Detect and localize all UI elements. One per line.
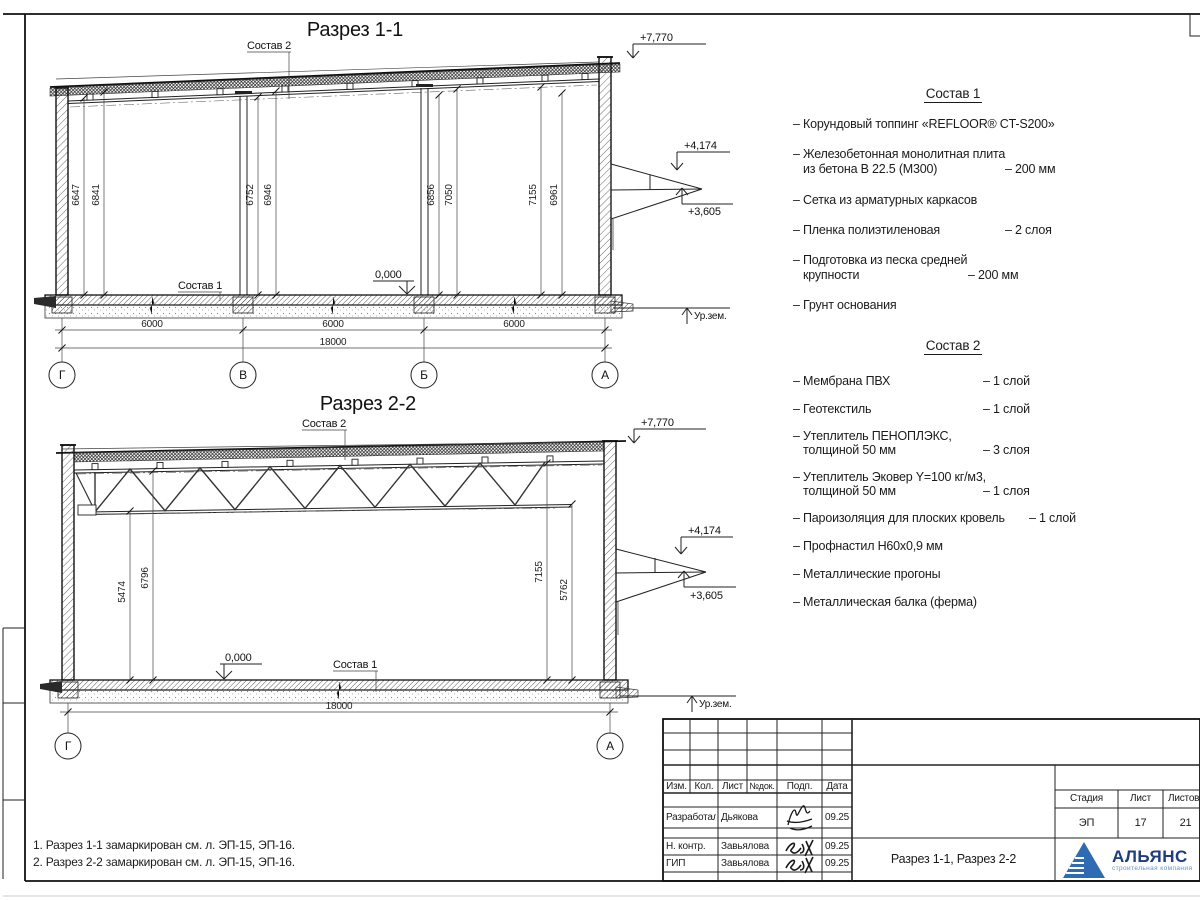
section-2-2: Разрез 2-2	[40, 393, 736, 759]
s2-dim-18000: 18000	[326, 701, 353, 712]
tb-header-doc: №док.	[747, 780, 777, 793]
corner-box	[1190, 14, 1200, 36]
list-item: – Геотекстиль– 1 слой	[793, 402, 871, 416]
s2-horizontal-dims: 18000 Г А	[55, 701, 623, 759]
s2-elev-0000: 0,000	[225, 652, 252, 664]
s1-dim-6000-1: 6000	[141, 319, 163, 330]
list-item: – Подготовка из песка средней	[793, 253, 967, 267]
tb-date-1: 09.25	[822, 808, 852, 828]
signature-zavyalova-2	[786, 857, 813, 873]
s1-axis-bubbles	[49, 362, 618, 388]
sostav-1-title: Состав 1	[793, 86, 1113, 101]
s2-elevation-marks: +7,770 +4,174 +3,605 0,000 Ур.зем. Соста…	[216, 417, 736, 712]
tb-role-razrabotal: Разработал	[666, 808, 716, 828]
s1-axis-v: В	[239, 368, 247, 382]
note-1: 1. Разрез 1-1 замаркирован см. л. ЭП-15,…	[33, 837, 295, 854]
list-item: – Сетка из арматурных каркасов	[793, 193, 977, 207]
signature-zavyalova-1	[786, 840, 813, 856]
tb-header-list: Лист	[718, 780, 747, 793]
s2-dim-5762: 5762	[559, 579, 570, 601]
s2-ground-label: Ур.зем.	[699, 699, 732, 710]
list-item: – Мембрана ПВХ– 1 слой	[793, 374, 890, 388]
list-item: – Пленка полиэтиленовая– 2 слоя	[793, 223, 940, 237]
list-item: – Профнастил Н60х0,9 мм	[793, 539, 943, 553]
tb-header-kol: Кол.	[690, 780, 718, 793]
s1-dim-6752: 6752	[245, 184, 256, 206]
section-1-title: Разрез 1-1	[307, 19, 403, 41]
list-item: – Пароизоляция для плоских кровель– 1 сл…	[793, 511, 1005, 525]
tb-name-zavyalova-1: Завьялова	[721, 838, 776, 855]
s1-vertical-dims: 6647 6841 6752 6946 6856 7050 7155 6961	[71, 84, 566, 299]
list-item: – Металлические прогоны	[793, 567, 940, 581]
logo-name: АЛЬЯНС	[1112, 848, 1192, 865]
list-item: – Утеплитель ПЕНОПЛЭКС,	[793, 429, 952, 443]
tb-header-data: Дата	[822, 780, 852, 793]
list-item: – Железобетонная монолитная плита	[793, 147, 1005, 161]
s1-dim-6856: 6856	[426, 184, 437, 206]
list-item: из бетона В 22.5 (М300)– 200 мм	[793, 162, 937, 176]
s1-sostav1-label: Состав 1	[178, 280, 222, 292]
s1-roof	[50, 62, 620, 107]
tb-stage-value: ЭП	[1055, 808, 1118, 838]
s1-dim-6961: 6961	[549, 184, 560, 206]
tb-role-gip: ГИП	[666, 855, 716, 872]
s2-axis-bubbles	[55, 733, 623, 759]
tb-stage-label: Стадия	[1055, 790, 1118, 808]
s2-truss-support	[78, 505, 96, 515]
s2-dim-6796: 6796	[140, 567, 151, 589]
list-item: – Утеплитель Эковер Y=100 кг/м3,	[793, 470, 986, 484]
list-item: – Корундовый топпинг «REFLOOR® CT-S200»	[793, 117, 1054, 131]
s1-dim-6946: 6946	[263, 184, 274, 206]
s1-dim-7155: 7155	[528, 184, 539, 206]
drawing-sheet: Разрез 1-1	[0, 0, 1200, 900]
tb-date-2: 09.25	[822, 838, 852, 855]
tb-name-zavyalova-2: Завьялова	[721, 855, 776, 872]
s2-dim-5474: 5474	[117, 581, 128, 603]
tb-sheet-label: Лист	[1118, 790, 1163, 808]
s2-elev-4174: +4,174	[688, 525, 721, 537]
s1-horizontal-dims: 6000 6000 6000 18000 Г В Б А	[49, 318, 618, 388]
s1-dim-6841: 6841	[91, 184, 102, 206]
s1-elev-7770: +7,770	[640, 32, 673, 44]
s1-floor	[34, 295, 633, 318]
s1-dim-7050: 7050	[444, 184, 455, 206]
s1-dim-18000: 18000	[320, 337, 347, 348]
left-margin-strip	[3, 628, 25, 879]
list-item: – Металлическая балка (ферма)	[793, 595, 977, 609]
s1-axis-a: А	[601, 368, 609, 382]
s2-sostav1-label: Состав 1	[333, 659, 377, 671]
tb-date-3: 09.25	[822, 855, 852, 872]
notes: 1. Разрез 1-1 замаркирован см. л. ЭП-15,…	[33, 837, 295, 871]
list-item: крупности– 200 мм	[793, 268, 859, 282]
logo-tagline: строительная компания	[1112, 865, 1192, 873]
s1-axis-b: Б	[420, 368, 428, 382]
s1-elev-0000: 0,000	[375, 269, 402, 281]
tb-sheets-value: 21	[1163, 808, 1200, 838]
list-item: – Грунт основания	[793, 298, 896, 312]
tb-header-izm: Изм.	[663, 780, 690, 793]
s1-sostav2-label: Состав 2	[247, 40, 291, 52]
s2-truss-diagonals	[95, 462, 545, 512]
list-item: толщиной 50 мм– 3 слоя	[793, 443, 896, 457]
company-logo: АЛЬЯНС строительная компания	[1062, 840, 1200, 880]
s2-vertical-dims: 5474 6796 7155 5762	[117, 460, 576, 684]
s1-elev-3605: +3,605	[688, 206, 721, 218]
tb-role-nkontr: Н. контр.	[666, 838, 716, 855]
section-1-1: Разрез 1-1	[34, 19, 733, 388]
tb-sheets-label: Листов	[1168, 790, 1200, 808]
s1-axis-g: Г	[59, 368, 66, 382]
s1-dim-6647: 6647	[71, 184, 82, 206]
logo-pyramid-icon	[1062, 841, 1106, 879]
s2-axis-a: А	[606, 739, 614, 753]
note-2: 2. Разрез 2-2 замаркирован см. л. ЭП-15,…	[33, 854, 295, 871]
sostav-2-title: Состав 2	[793, 338, 1113, 353]
s2-sostav2-label: Состав 2	[302, 418, 346, 430]
tb-doc-title: Разрез 1-1, Разрез 2-2	[852, 838, 1055, 881]
tb-header-podp: Подп.	[777, 780, 822, 793]
s2-axis-g: Г	[65, 739, 72, 753]
s2-elev-3605: +3,605	[690, 590, 723, 602]
s2-dim-7155: 7155	[534, 561, 545, 583]
signature-dyakova	[787, 806, 812, 830]
s1-ground-label: Ур.зем.	[694, 311, 727, 322]
tb-name-dyakova: Дьякова	[721, 808, 776, 828]
s1-dim-6000-2: 6000	[322, 319, 344, 330]
s2-elev-7770: +7,770	[641, 417, 674, 429]
s1-ground-wedge-right	[611, 301, 633, 312]
list-item: толщиной 50 мм– 1 слоя	[793, 484, 896, 498]
section-2-title: Разрез 2-2	[320, 393, 416, 415]
s1-dim-6000-3: 6000	[503, 319, 525, 330]
s1-elev-4174: +4,174	[684, 140, 717, 152]
s2-floor	[40, 680, 638, 703]
tb-sheet-value: 17	[1118, 808, 1163, 838]
